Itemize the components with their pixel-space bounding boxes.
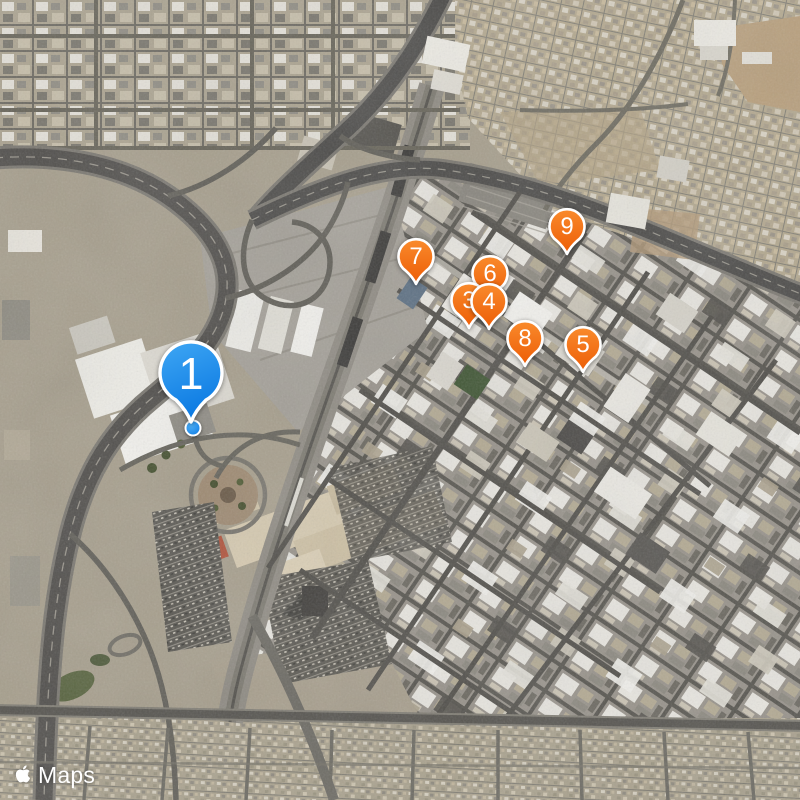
map-canvas[interactable]: 9 7 6 3 4 8 5 1 Maps: [0, 0, 800, 800]
map-pin-8[interactable]: 8: [503, 319, 547, 371]
map-pin-1[interactable]: 1: [152, 338, 230, 436]
map-pin-5[interactable]: 5: [561, 325, 605, 377]
map-attribution: Maps: [14, 762, 95, 789]
map-pin-7[interactable]: 7: [394, 237, 438, 289]
map-pin-9[interactable]: 9: [545, 207, 589, 259]
attribution-label: Maps: [38, 762, 95, 789]
apple-logo-icon: [14, 765, 32, 786]
satellite-imagery: [0, 0, 800, 800]
